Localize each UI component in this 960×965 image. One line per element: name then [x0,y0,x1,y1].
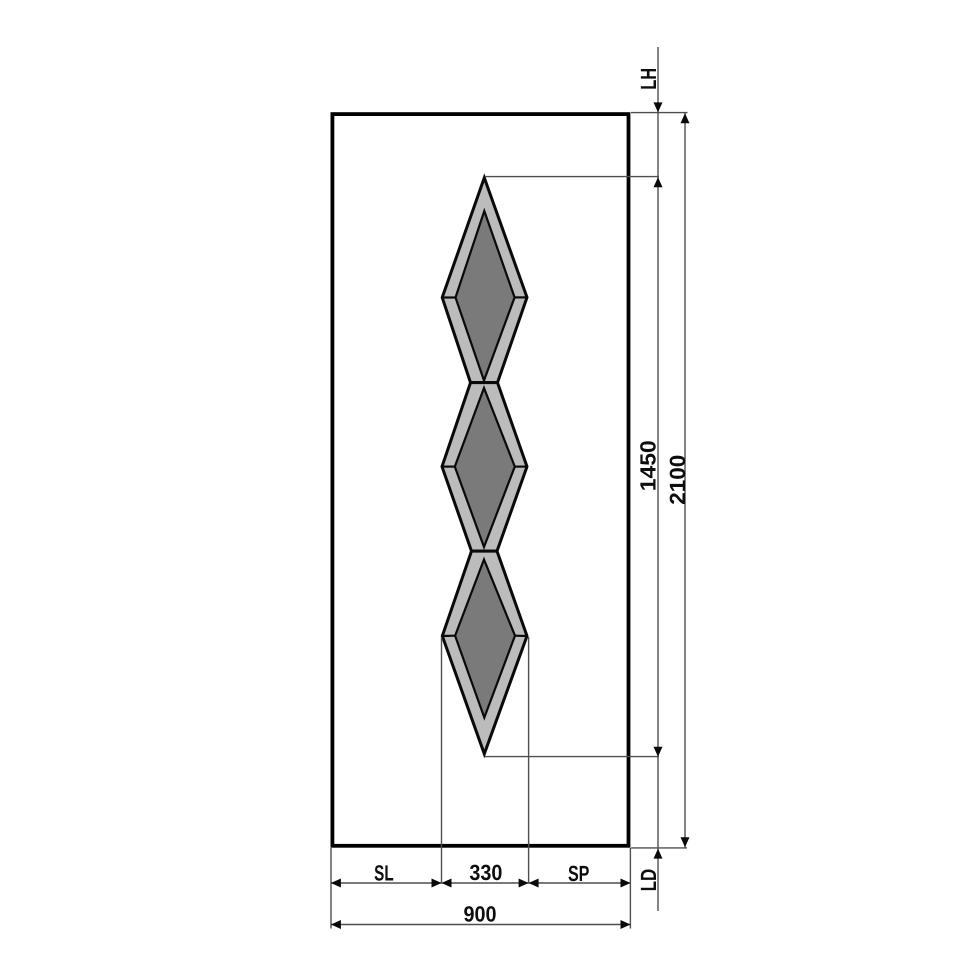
svg-text:SL: SL [374,861,394,886]
svg-text:900: 900 [464,901,497,926]
svg-text:2100: 2100 [665,455,690,505]
svg-text:SP: SP [568,861,590,886]
svg-text:LH: LH [636,68,661,90]
svg-text:1450: 1450 [635,440,660,491]
svg-text:LD: LD [636,869,661,892]
svg-text:330: 330 [469,860,502,885]
